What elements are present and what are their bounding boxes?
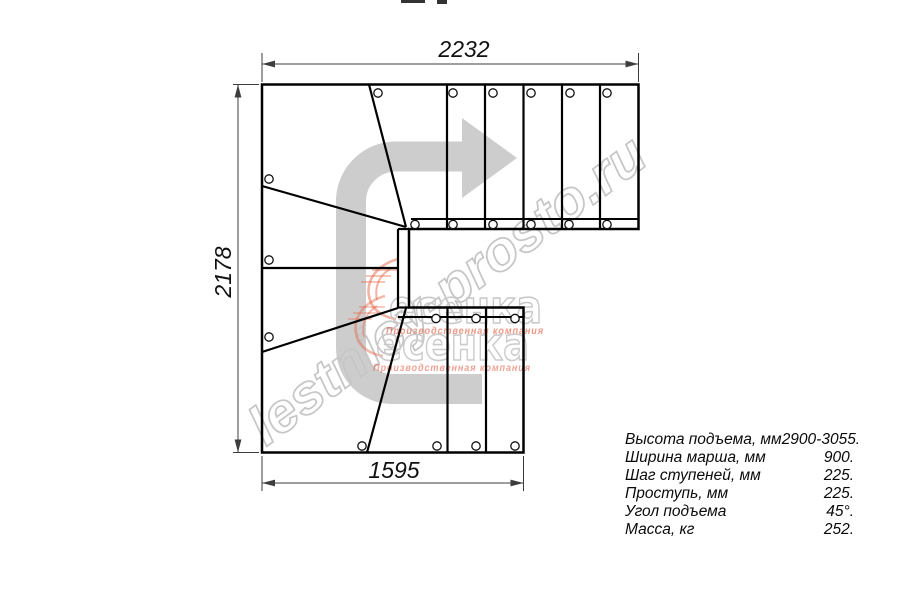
fastener-hole (449, 220, 457, 228)
spec-value: 225. (824, 467, 854, 485)
dimension-bottom-value: 1595 (368, 457, 419, 483)
fastener-hole (374, 89, 382, 97)
fastener-hole (265, 333, 273, 341)
fastener-hole (411, 220, 419, 228)
dimension-left-value: 2178 (210, 246, 236, 298)
spec-table: Высота подъема, мм 2900-3055. Ширина мар… (625, 431, 854, 539)
spec-row: Проступь, мм 225. (625, 485, 854, 503)
spec-label: Шаг ступеней, мм (625, 467, 761, 485)
dimension-top-value: 2232 (437, 36, 489, 62)
spec-label: Угол подъема (625, 503, 726, 521)
logo-subtitle-text: Производственная компания (373, 362, 531, 374)
fastener-hole (603, 220, 611, 228)
spec-value: 225. (824, 485, 854, 503)
spec-value: 2900-3055. (782, 431, 860, 449)
fastener-hole (472, 442, 480, 450)
fastener-hole (511, 314, 519, 322)
fastener-hole (527, 220, 535, 228)
fastener-hole (565, 220, 573, 228)
dimension-top: 2232 (262, 36, 639, 82)
spec-row: Шаг ступеней, мм 225. (625, 467, 854, 485)
fastener-hole (527, 89, 535, 97)
stair-plan-drawing: lestnicy-prosto.ru есенка Производственн… (0, 0, 900, 600)
fastener-hole (472, 314, 480, 322)
dimension-bottom: 1595 (262, 456, 524, 491)
spec-row: Ширина марша, мм 900. (625, 449, 854, 467)
spec-label: Масса, кг (625, 521, 694, 539)
direction-arrow-head (462, 118, 517, 198)
spec-row: Угол подъема 45°. (625, 503, 854, 521)
fastener-hole (265, 175, 273, 183)
fastener-hole (433, 442, 441, 450)
cropped-title-fragment (401, 0, 447, 4)
spec-value: 900. (824, 449, 854, 467)
fastener-hole (566, 89, 574, 97)
fastener-hole (511, 442, 519, 450)
fastener-hole (449, 89, 457, 97)
spec-label: Ширина марша, мм (625, 449, 766, 467)
spec-row: Высота подъема, мм 2900-3055. (625, 431, 854, 449)
spec-label: Проступь, мм (625, 485, 728, 503)
fastener-hole (432, 314, 440, 322)
fastener-hole (489, 220, 497, 228)
spec-value: 252. (824, 521, 854, 539)
spec-label: Высота подъема, мм (625, 431, 782, 449)
fastener-hole (265, 256, 273, 264)
fastener-hole (489, 89, 497, 97)
spec-row: Масса, кг 252. (625, 521, 854, 539)
fastener-hole (358, 442, 366, 450)
spec-value: 45°. (826, 503, 854, 521)
fastener-hole (603, 89, 611, 97)
